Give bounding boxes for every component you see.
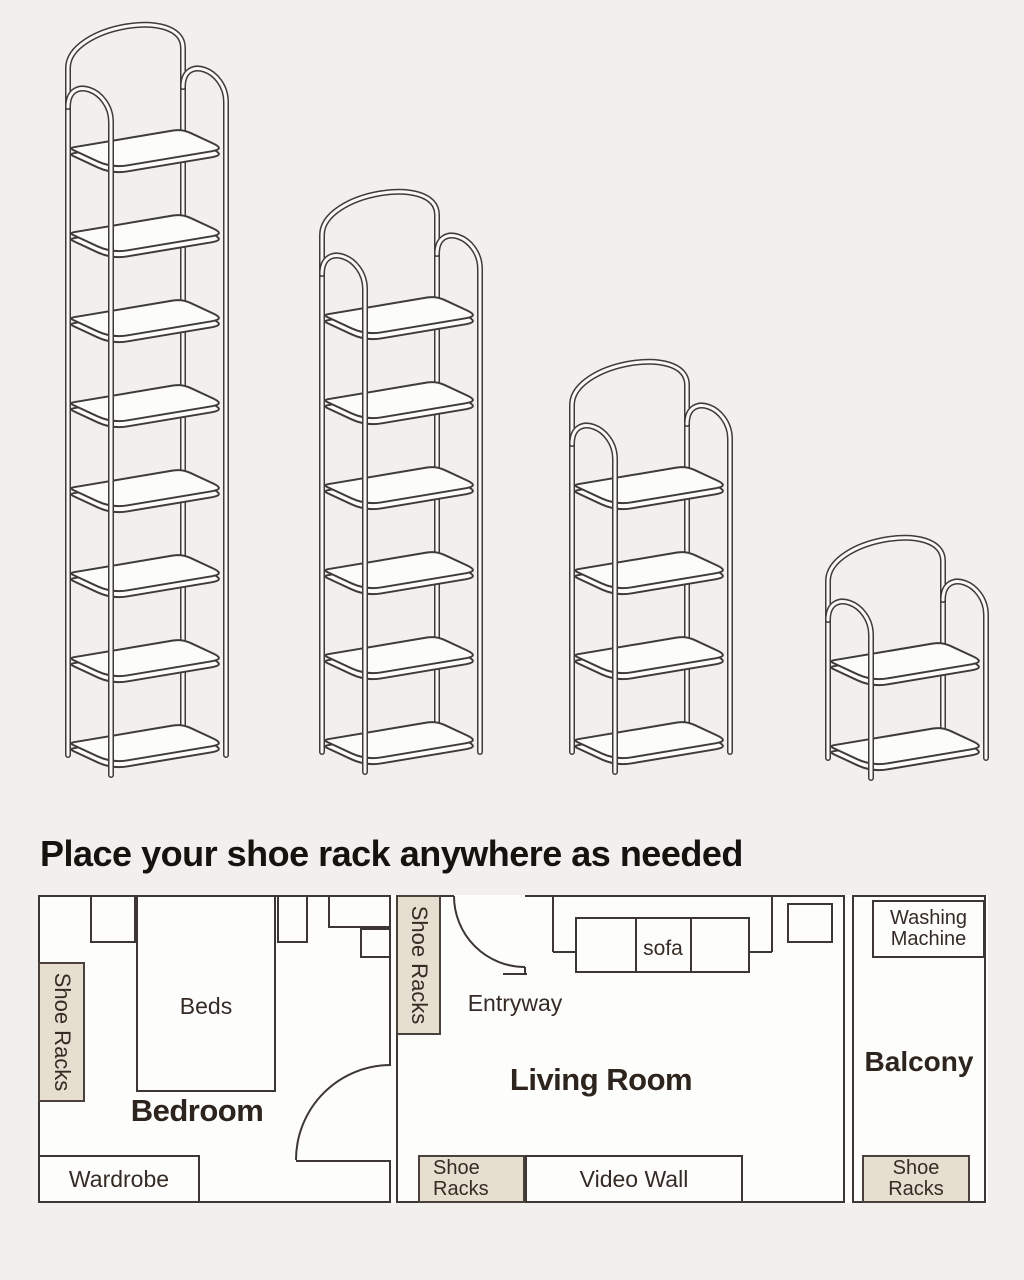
section-heading: Place your shoe rack anywhere as needed — [40, 833, 743, 875]
entryway-label: Entryway — [455, 990, 575, 1016]
bedroom-window-rect — [90, 895, 136, 943]
shoe-rack-living-bottom-label-line2: Racks — [433, 1179, 523, 1200]
side-cabinet-rect — [787, 903, 833, 943]
washing-machine-rect: Washing Machine — [872, 900, 985, 958]
wardrobe-rect: Wardrobe — [38, 1155, 200, 1203]
shoe-rack-size-variants — [0, 0, 1024, 832]
shoe-rack-balcony: Shoe Racks — [862, 1155, 970, 1203]
shoe-rack-living-bottom: Shoe Racks — [418, 1155, 525, 1203]
video-wall-label: Video Wall — [580, 1166, 689, 1193]
shoe-rack-entry: Shoe Racks — [396, 895, 441, 1035]
shoe-rack-bedroom-label: Shoe Racks — [49, 973, 75, 1092]
shoe-rack-living-bottom-label-line1: Shoe — [433, 1158, 523, 1179]
wardrobe-label: Wardrobe — [69, 1166, 169, 1193]
balcony-label: Balcony — [854, 1047, 984, 1077]
rack-6-tier — [322, 192, 480, 772]
washing-machine-label-line2: Machine — [874, 929, 983, 950]
beds-label: Beds — [180, 993, 232, 1020]
shoe-rack-balcony-label-line2: Racks — [864, 1179, 968, 1200]
washing-machine-label-line1: Washing — [874, 908, 983, 929]
beds-rect: Beds — [136, 895, 276, 1092]
rack-2-tier — [828, 538, 986, 778]
video-wall-rect: Video Wall — [525, 1155, 743, 1203]
sofa-divider — [690, 919, 692, 971]
wall-step-upper — [328, 895, 391, 928]
floor-plan: Beds Shoe Racks Bedroom Wardrobe Shoe Ra… — [38, 895, 988, 1203]
living-room-label: Living Room — [496, 1063, 706, 1097]
rack-8-tier — [68, 25, 226, 775]
shoe-rack-entry-label: Shoe Racks — [406, 906, 432, 1025]
rack-4-tier — [572, 362, 730, 772]
wall-step-lower — [360, 928, 391, 958]
nightstand-rect — [277, 895, 308, 943]
infographic-page: Place your shoe rack anywhere as needed … — [0, 0, 1024, 1280]
bedroom-label: Bedroom — [97, 1094, 297, 1128]
shoe-rack-bedroom: Shoe Racks — [38, 962, 85, 1102]
shoe-rack-balcony-label-line1: Shoe — [864, 1158, 968, 1179]
sofa-label: sofa — [636, 937, 690, 961]
